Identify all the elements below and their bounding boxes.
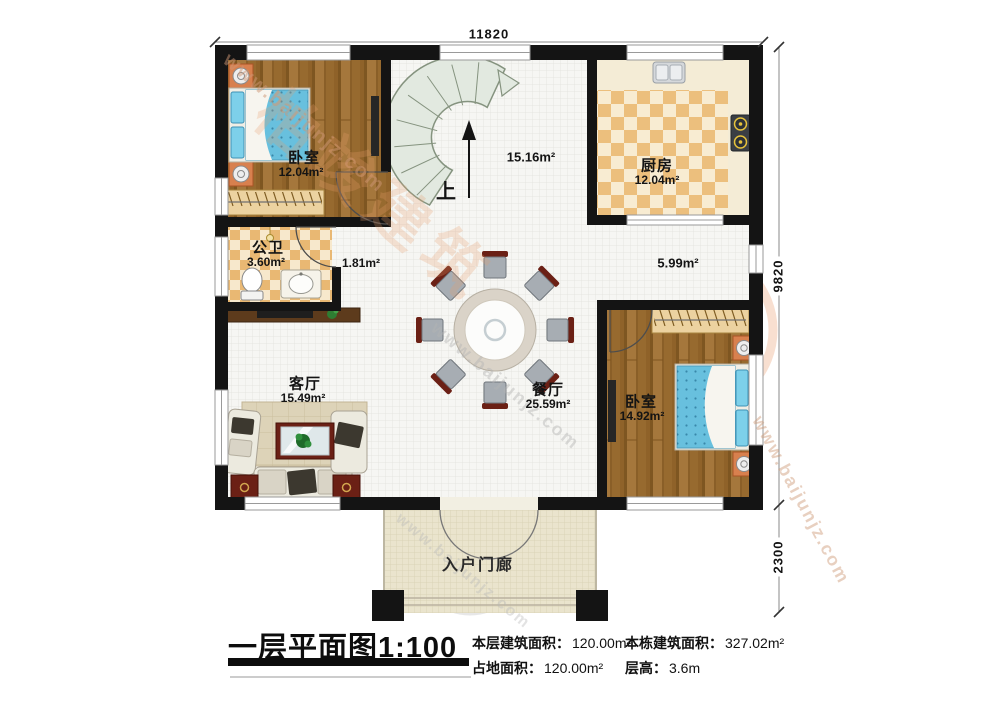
tv	[608, 380, 616, 442]
stat-footprint-area: 占地面积：120.00m²	[472, 658, 603, 678]
window	[245, 497, 340, 510]
sofa-chaise	[223, 409, 262, 476]
stat-value: 327.02m²	[723, 635, 784, 651]
stat-storey-height: 层高：3.6m	[625, 658, 700, 678]
stat-value: 120.00m²	[542, 660, 603, 676]
porch-pillar	[372, 590, 404, 621]
room-area-dining: 25.59m²	[526, 398, 571, 410]
stat-label: 层高：	[625, 660, 667, 676]
dimension-right-porch: 2300	[772, 538, 785, 577]
window	[215, 237, 228, 296]
side-table	[231, 475, 258, 500]
window	[627, 45, 723, 60]
window	[627, 215, 723, 225]
stat-value: 120.00m²	[570, 635, 631, 651]
area-right-hall: 5.99m²	[657, 257, 698, 270]
porch-pillar	[576, 590, 608, 621]
stair-direction-label: 上	[436, 182, 456, 202]
room-area-bathroom: 3.60m²	[247, 256, 285, 268]
room-area-living: 15.49m²	[281, 392, 326, 404]
pillow	[231, 127, 244, 158]
window	[440, 45, 530, 60]
room-label-porch: 入户门廊	[442, 558, 514, 574]
room-label-bedroom-right: 卧室	[625, 395, 657, 410]
floor-plan-drawing: 柏	[0, 0, 1000, 706]
pillow	[736, 370, 748, 406]
stat-label: 本层建筑面积：	[472, 635, 570, 651]
area-stair-hall: 15.16m²	[507, 151, 555, 164]
room-area-bedroom-right: 14.92m²	[620, 410, 665, 422]
side-table	[333, 475, 360, 500]
room-label-kitchen: 厨房	[641, 159, 673, 174]
area-bath-hall: 1.81m²	[342, 257, 380, 269]
room-area-bedroom-left: 12.04m²	[279, 166, 324, 178]
stat-label: 本栋建筑面积：	[625, 635, 723, 651]
floor-plan-page: 柏	[0, 0, 1000, 706]
title-underline-shadow	[230, 676, 471, 678]
room-label-bathroom: 公卫	[252, 241, 284, 256]
kitchen-floor	[597, 90, 728, 215]
room-label-bedroom-left: 卧室	[288, 151, 320, 166]
title-underline	[228, 658, 469, 666]
pillow	[231, 92, 244, 123]
pillow	[736, 410, 748, 446]
dimension-top: 11820	[466, 28, 512, 41]
stat-value: 3.6m	[667, 660, 700, 676]
dimension-right-main: 9820	[772, 257, 785, 296]
window	[215, 390, 228, 465]
window	[215, 178, 228, 215]
stat-floor-area: 本层建筑面积：120.00m²	[472, 633, 631, 653]
room-label-dining: 餐厅	[532, 383, 564, 398]
window	[627, 497, 723, 510]
window	[749, 245, 763, 273]
stat-building-area: 本栋建筑面积：327.02m²	[625, 633, 784, 653]
room-label-living: 客厅	[289, 377, 321, 392]
stat-label: 占地面积：	[472, 660, 542, 676]
room-area-kitchen: 12.04m²	[635, 174, 680, 186]
toilet	[242, 268, 262, 292]
entry-door-opening	[440, 497, 538, 510]
watermark-url: www.baijunjz.com	[748, 412, 854, 588]
tv	[371, 96, 379, 156]
window	[247, 45, 350, 60]
